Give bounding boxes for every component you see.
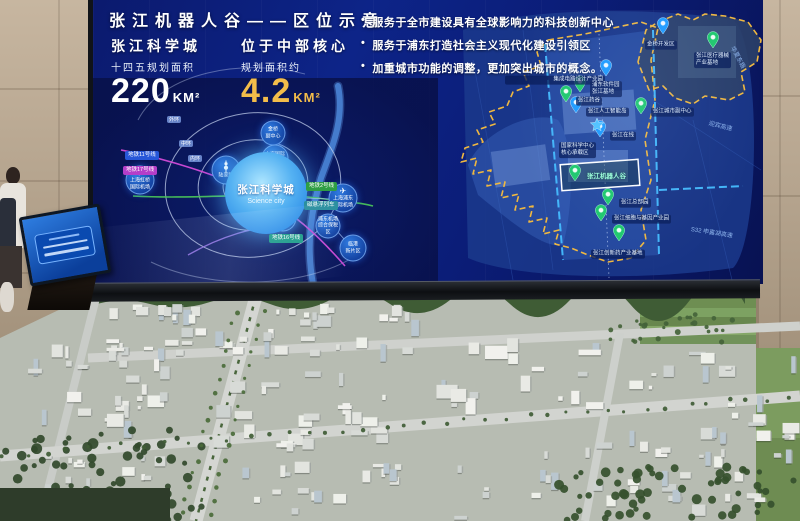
stats-block: 张江科学城 十四五规划面积 220KM² 位于中部核心 规划面积约 4.2KM² <box>111 36 349 110</box>
stat-value: 4.2 <box>241 72 291 110</box>
screen-glare <box>513 10 763 280</box>
ring-road-label: 内环 <box>188 155 202 162</box>
city-scale-model <box>0 288 800 521</box>
stat-title: 位于中部核心 <box>241 36 349 56</box>
stat-title: 张江科学城 <box>111 36 201 56</box>
info-display-panel <box>34 225 97 265</box>
info-display-text-line <box>44 246 89 256</box>
stat-value: 220 <box>111 72 171 110</box>
metro-line-label: 地铁11号线 <box>125 151 159 160</box>
model-dark-ground <box>0 488 170 521</box>
stat-unit: KM² <box>173 90 201 105</box>
info-display <box>19 203 112 286</box>
stat-core-area: 位于中部核心 规划面积约 4.2KM² <box>241 36 349 110</box>
bullet-dot: • <box>361 60 365 76</box>
led-screen: ✈ 上海虹桥 国际机场 陆家嘴 金桥 副中心 上海国际 旅游度假区 迪士尼 乐园… <box>88 0 763 284</box>
screen-title: 张江机器人谷——区位示意 <box>109 7 385 31</box>
node-jinqiao: 金桥 副中心 <box>261 121 286 146</box>
stat-science-city: 张江科学城 十四五规划面积 220KM² <box>111 36 201 110</box>
metro-line-label: 地铁2号线 <box>306 182 337 191</box>
ring-road-label: 中环 <box>179 140 193 147</box>
person-hand <box>0 282 14 312</box>
pearl-tower-icon <box>222 161 231 173</box>
ring-road-label: 外环 <box>167 116 181 123</box>
bullet-dot: • <box>361 14 365 30</box>
exhibition-photo: ✈ 上海虹桥 国际机场 陆家嘴 金桥 副中心 上海国际 旅游度假区 迪士尼 乐园… <box>0 0 800 521</box>
info-display-text-line <box>48 233 79 240</box>
metro-line-label: 地铁17号线 <box>123 166 157 175</box>
person-head <box>6 167 20 184</box>
stat-unit: KM² <box>293 90 321 105</box>
bullet-dot: • <box>361 37 365 53</box>
screen-bezel <box>84 279 760 302</box>
